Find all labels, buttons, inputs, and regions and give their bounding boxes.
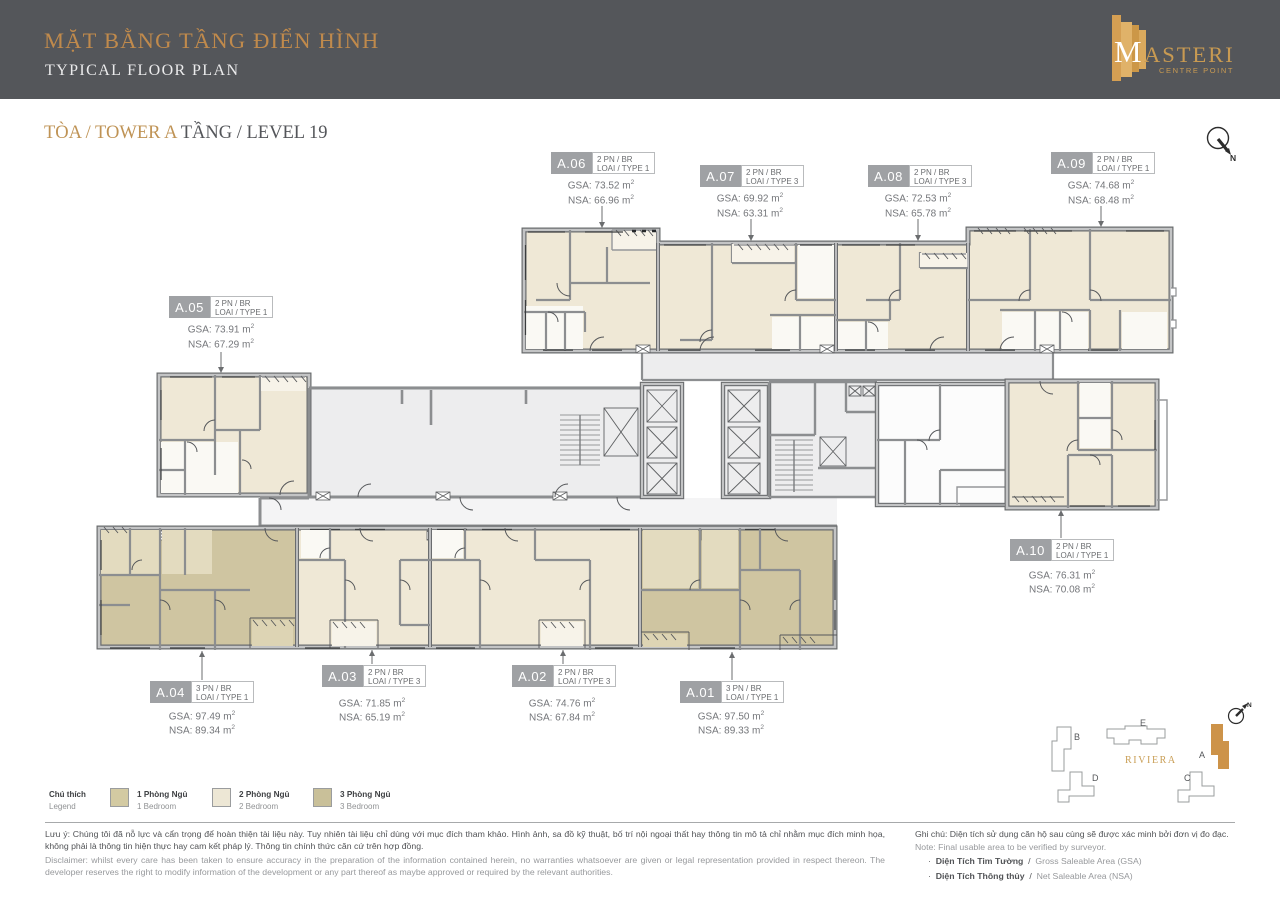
- svg-text:A: A: [1199, 750, 1205, 760]
- svg-text:D: D: [1092, 773, 1099, 783]
- svg-text:N: N: [1230, 153, 1236, 163]
- svg-text:E: E: [1140, 718, 1146, 728]
- svg-text:N: N: [1247, 702, 1252, 709]
- svg-text:RIVIERA: RIVIERA: [1125, 755, 1177, 766]
- svg-text:B: B: [1074, 732, 1080, 742]
- svg-text:C: C: [1184, 773, 1191, 783]
